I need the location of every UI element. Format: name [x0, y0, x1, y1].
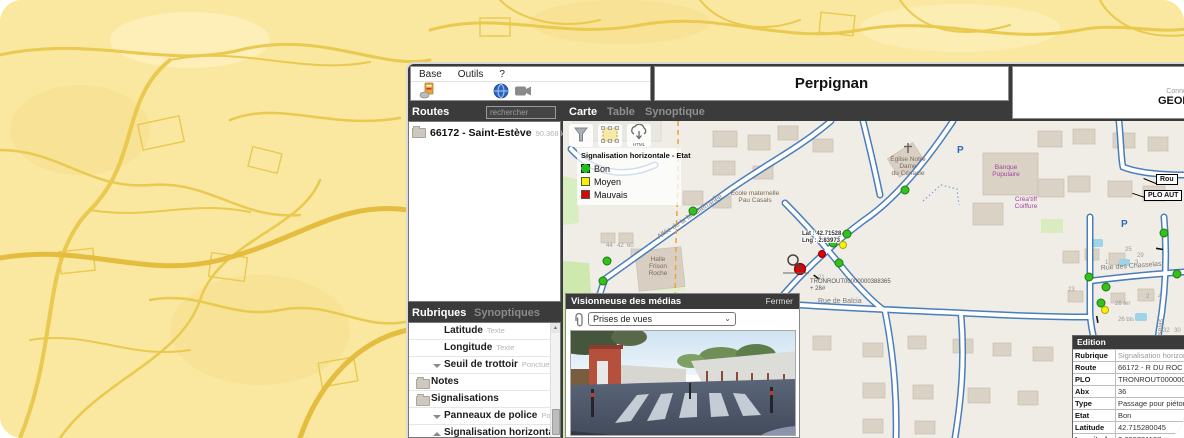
session-label: Connecté sous: [1101, 88, 1184, 95]
map-label-banque: Banque: [995, 164, 1018, 171]
marker-bon[interactable]: [603, 257, 611, 265]
map-legend: Signalisation horizontale - Etat Bon Moy…: [577, 148, 681, 205]
svg-text:Frison: Frison: [649, 263, 667, 270]
legend-swatch-mauvais: [581, 190, 590, 199]
svg-text:32: 32: [1163, 328, 1170, 334]
tab-carte[interactable]: Carte: [569, 106, 597, 118]
media-viewer-titlebar[interactable]: Visionneuse des médias Fermer: [566, 294, 799, 309]
globe-icon[interactable]: [493, 83, 509, 99]
legend-item-moyen: Moyen: [581, 175, 677, 188]
item-label: Latitude: [444, 325, 483, 336]
media-viewer-title: Visionneuse des médias: [571, 296, 681, 307]
edition-row: TypePassage pour piétons: [1073, 397, 1184, 409]
svg-text:29: 29: [1137, 253, 1144, 259]
edition-title: Edition: [1073, 336, 1184, 349]
marker-bon[interactable]: [1085, 273, 1093, 281]
marker-bon[interactable]: [1097, 299, 1105, 307]
marker-bon[interactable]: [1160, 229, 1168, 237]
item-type: Texte: [496, 343, 514, 352]
tab-synoptique[interactable]: Synoptique: [645, 106, 705, 118]
edition-row: PLOTRONROUT00000000: [1073, 373, 1184, 385]
map-label-coiffure: Créa'tiff: [1015, 196, 1037, 203]
marker-bon[interactable]: [1102, 283, 1110, 291]
legend-item-bon: Bon: [581, 162, 677, 175]
map-panel-header: Carte Table Synoptique: [563, 104, 1184, 121]
svg-text:Dame: Dame: [899, 163, 917, 170]
svg-text:26 ter: 26 ter: [1115, 301, 1130, 307]
svg-text:44: 44: [606, 243, 613, 249]
tab-table[interactable]: Table: [607, 106, 635, 118]
rubrique-item-signalisations[interactable]: Signalisations: [409, 391, 560, 408]
main-toolbar: [411, 82, 650, 101]
svg-text:42: 42: [617, 243, 624, 249]
media-source-value: Prises de vues: [593, 314, 652, 324]
edition-row: RubriqueSignalisation horizonta: [1073, 349, 1184, 361]
close-button[interactable]: Fermer: [766, 296, 793, 306]
marker-bon[interactable]: [599, 277, 607, 285]
media-source-select[interactable]: Prises de vues ⌄: [588, 312, 736, 326]
rubrique-item-signalisation-horizontale[interactable]: Signalisation horizontalePon: [409, 425, 560, 438]
menu-help[interactable]: ?: [499, 69, 505, 80]
media-viewer: Visionneuse des médias Fermer Prises de …: [565, 293, 800, 438]
legend-item-mauvais: Mauvais: [581, 188, 677, 201]
route-tree-item[interactable]: 66172 - Saint-Estève 90.368 km: [409, 122, 560, 144]
svg-text:60: 60: [627, 243, 634, 249]
edition-row: Latitude42.715280045: [1073, 421, 1184, 433]
item-type: Texte: [487, 326, 505, 335]
marker-bon[interactable]: [901, 186, 909, 194]
chevron-down-icon[interactable]: [433, 364, 441, 368]
item-type: Ponctuel: [522, 360, 551, 369]
svg-text:Coiffure: Coiffure: [1015, 203, 1038, 210]
svg-text:Roche: Roche: [649, 270, 668, 277]
marker-moyen[interactable]: [1102, 307, 1109, 314]
svg-text:30: 30: [1174, 328, 1181, 334]
edition-row: EtatBon: [1073, 409, 1184, 421]
rubrique-item-notes[interactable]: Notes: [409, 374, 560, 391]
map-toolbar: HTML: [569, 124, 651, 147]
menubar: Base Outils ?: [411, 67, 650, 82]
item-label: Panneaux de police: [444, 410, 537, 421]
svg-text:Pau Casals: Pau Casals: [738, 197, 772, 204]
scroll-up-button[interactable]: ▲: [551, 323, 560, 333]
scroll-thumb[interactable]: [552, 409, 560, 435]
item-label: Signalisation horizontale: [444, 427, 561, 438]
app-window: Base Outils ?: [408, 64, 1184, 438]
signs-icon[interactable]: [419, 82, 435, 99]
menu-window: Base Outils ?: [410, 66, 651, 101]
folder-icon: [412, 128, 426, 138]
folder-icon: [416, 396, 430, 406]
routes-tree: 66172 - Saint-Estève 90.368 km: [408, 121, 561, 302]
map-label-ecole: École maternelle: [731, 188, 780, 197]
html-tool-label: HTML: [627, 142, 651, 147]
callout-plo: PLO AUT: [1144, 190, 1182, 201]
select-area-icon[interactable]: [598, 124, 622, 147]
svg-text:Populaire: Populaire: [992, 171, 1020, 178]
item-label: Longitude: [444, 342, 492, 353]
parking-icon: P: [1121, 219, 1128, 230]
menu-outils[interactable]: Outils: [458, 69, 484, 80]
legend-title: Signalisation horizontale - Etat: [581, 151, 677, 160]
marker-bon[interactable]: [835, 259, 843, 267]
parking-icon: P: [957, 145, 964, 156]
legend-swatch-bon: [581, 164, 590, 173]
screenshot-root: Base Outils ?: [0, 0, 1184, 438]
video-camera-icon[interactable]: [515, 85, 533, 99]
routes-panel-header: Routes: [408, 104, 561, 121]
folder-icon: [416, 379, 430, 389]
menu-base[interactable]: Base: [419, 69, 442, 80]
scrollbar[interactable]: ▲: [550, 323, 560, 437]
edition-row: Abx36: [1073, 385, 1184, 397]
street-name: Rue de Balcia: [818, 298, 862, 305]
svg-text:26 bis: 26 bis: [1118, 317, 1134, 323]
marker-mauvais[interactable]: [819, 251, 826, 258]
chevron-down-icon[interactable]: [433, 415, 441, 419]
callout-route: Rou: [1156, 174, 1178, 185]
route-name: 66172 - Saint-Estève: [430, 127, 532, 139]
rubriques-list: LatitudeTexte LongitudeTexte Seuil de tr…: [408, 322, 561, 438]
street-photo[interactable]: [570, 330, 796, 436]
svg-text:25: 25: [1125, 247, 1132, 253]
segment-id-label: TRONROUT00000000388365: [810, 279, 891, 285]
svg-text:du Cénacle: du Cénacle: [892, 170, 925, 177]
rubriques-panel-header: Rubriques Synoptiques: [408, 305, 561, 322]
funnel-icon[interactable]: [569, 124, 593, 147]
title-window: Perpignan: [654, 66, 1009, 101]
tab-rubriques[interactable]: Rubriques: [412, 307, 466, 319]
legend-swatch-moyen: [581, 177, 590, 186]
routes-title: Routes: [412, 106, 449, 118]
rubrique-item-seuil[interactable]: Seuil de trottoirPonctuel: [409, 357, 560, 374]
marker-bon[interactable]: [1173, 270, 1181, 278]
edition-panel: Edition RubriqueSignalisation horizonta …: [1072, 335, 1184, 438]
map-label-halle: Halle: [651, 256, 666, 263]
marker-moyen[interactable]: [840, 242, 847, 249]
rubrique-item-panneaux[interactable]: Panneaux de policePonctuel: [409, 408, 560, 425]
item-label: Seuil de trottoir: [444, 359, 518, 370]
edition-row: Longitude2.839731127: [1073, 433, 1184, 438]
svg-text:23: 23: [1068, 287, 1075, 293]
page-title: Perpignan: [655, 67, 1008, 92]
rubrique-item-longitude[interactable]: LongitudeTexte: [409, 340, 560, 357]
download-html-icon[interactable]: HTML: [627, 124, 651, 147]
marker-bon[interactable]: [843, 230, 851, 238]
chevron-down-icon: ⌄: [724, 314, 731, 323]
rubrique-item-latitude[interactable]: LatitudeTexte: [409, 323, 560, 340]
routes-search-input[interactable]: [486, 106, 556, 119]
map-label-eglise: Église Notre: [890, 154, 926, 163]
edition-row: Route66172 - R DU ROC DE: [1073, 361, 1184, 373]
tab-synoptiques[interactable]: Synoptiques: [474, 307, 540, 319]
cursor-coords-tooltip: Lat : 42.71528: [802, 231, 842, 237]
paperclip-icon: [572, 313, 586, 328]
svg-text:Lng : 2.83973: Lng : 2.83973: [802, 238, 841, 244]
chevron-up-icon[interactable]: [433, 432, 441, 436]
svg-text:+ 28#: + 28#: [810, 286, 826, 292]
marker-bon[interactable]: [689, 207, 697, 215]
